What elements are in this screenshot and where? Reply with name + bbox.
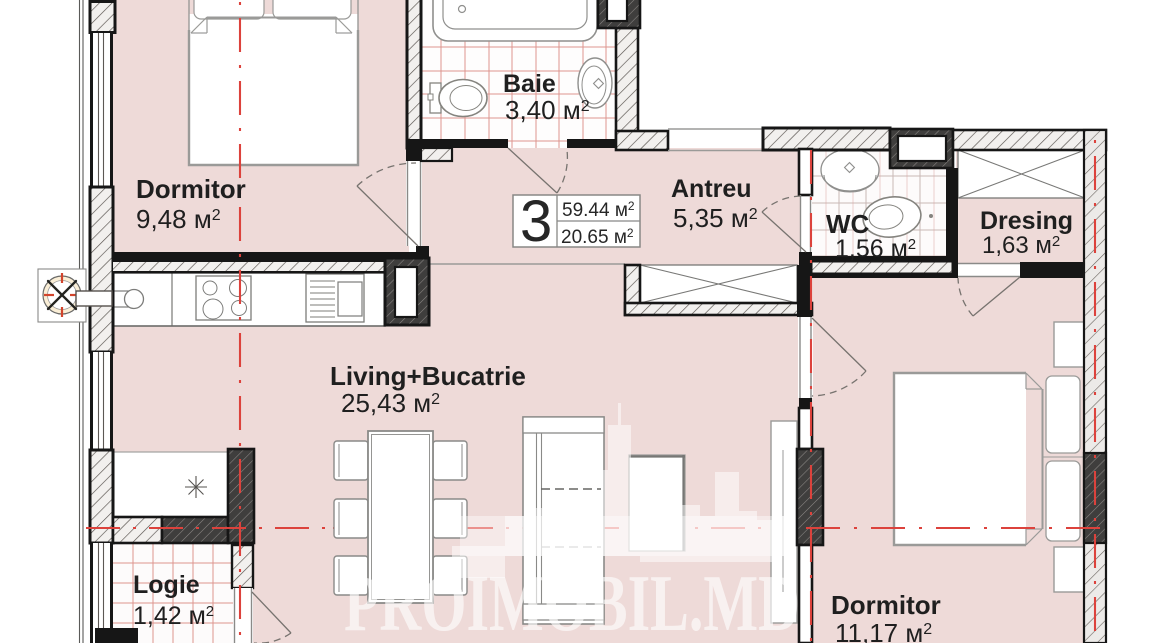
svg-text:20.65 м2: 20.65 м2 [561,226,634,248]
svg-text:1,63 м2: 1,63 м2 [982,232,1060,259]
svg-text:1,42 м2: 1,42 м2 [133,602,214,630]
svg-text:1,56 м2: 1,56 м2 [835,235,916,263]
svg-text:Living+Bucatrie: Living+Bucatrie [330,361,526,391]
svg-text:Dormitor: Dormitor [136,174,246,204]
svg-text:5,35 м2: 5,35 м2 [673,203,758,233]
svg-text:Dresing: Dresing [980,207,1073,235]
svg-text:Dormitor: Dormitor [831,590,941,620]
svg-text:Antreu: Antreu [671,175,752,203]
svg-text:59.44 м2: 59.44 м2 [562,199,635,221]
svg-text:3,40 м2: 3,40 м2 [505,95,590,125]
svg-text:PROIMOBIL.MD: PROIMOBIL.MD [344,560,800,643]
svg-text:11,17 м2: 11,17 м2 [835,618,932,643]
svg-text:3: 3 [520,189,552,254]
svg-text:Baie: Baie [503,70,556,98]
svg-text:9,48 м2: 9,48 м2 [136,204,221,234]
svg-text:25,43 м2: 25,43 м2 [341,388,440,418]
svg-text:Logie: Logie [133,571,200,599]
